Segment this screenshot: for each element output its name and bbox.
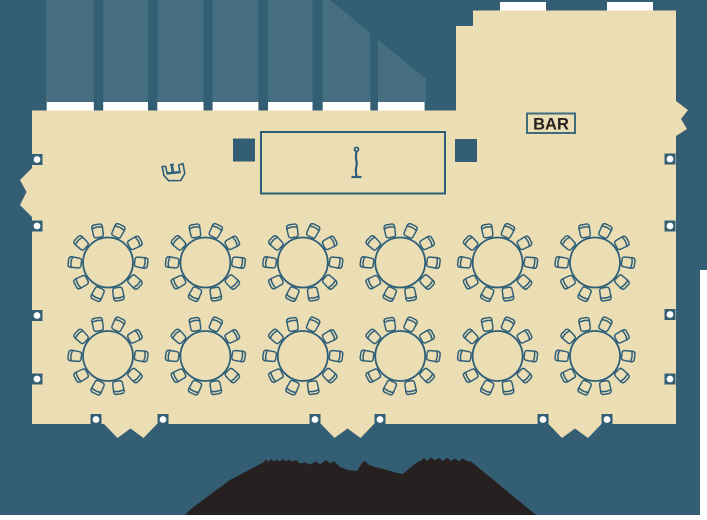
svg-text:BAR: BAR [533, 116, 569, 134]
